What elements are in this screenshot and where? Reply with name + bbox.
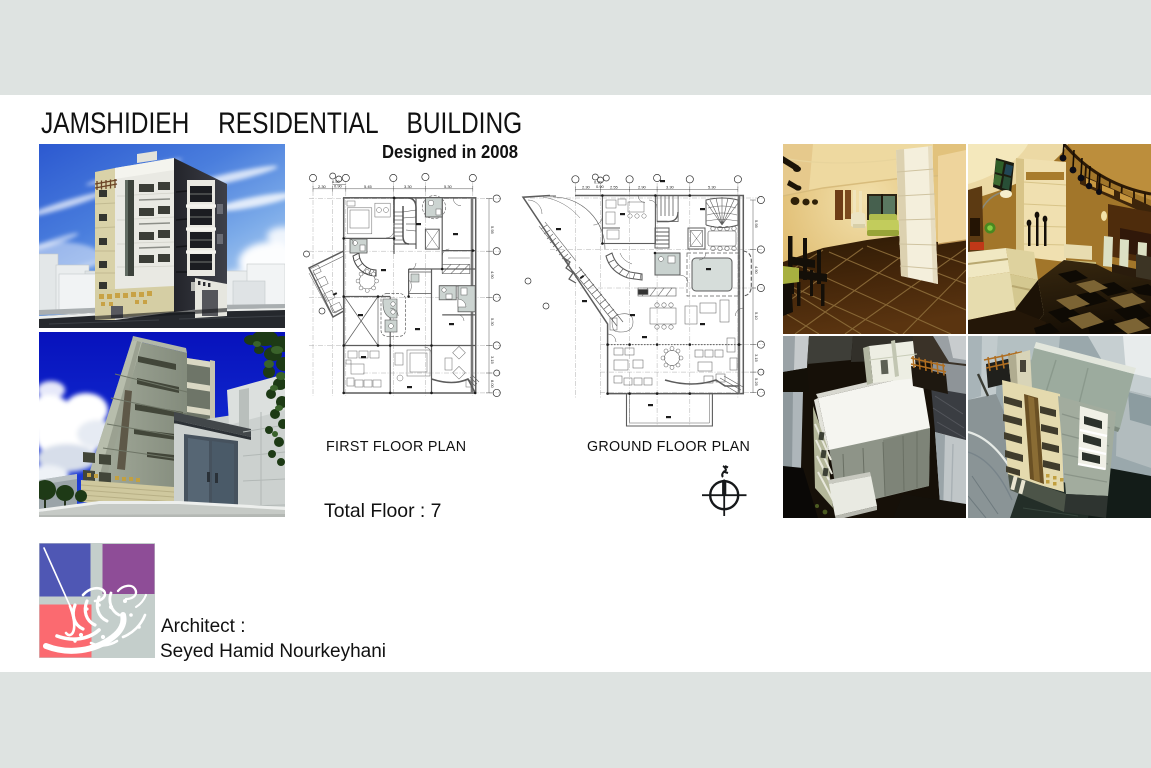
svg-text:5.95: 5.95: [754, 220, 759, 229]
svg-text:5.25: 5.25: [754, 378, 759, 387]
svg-text:5.30: 5.30: [708, 184, 717, 189]
svg-text:3.30: 3.30: [404, 184, 413, 189]
svg-text:5.10: 5.10: [754, 312, 759, 321]
svg-text:2.55: 2.55: [610, 184, 619, 189]
svg-text:5.30: 5.30: [490, 318, 495, 327]
svg-text:3.15: 3.15: [754, 354, 759, 363]
svg-text:0.90: 0.90: [334, 183, 343, 188]
svg-text:5.95: 5.95: [490, 226, 495, 235]
svg-text:4.90: 4.90: [490, 271, 495, 280]
svg-text:3.15: 3.15: [490, 356, 495, 365]
svg-text:5.45: 5.45: [364, 184, 373, 189]
svg-text:8.00: 8.00: [490, 380, 495, 389]
svg-text:2.30: 2.30: [582, 184, 591, 189]
svg-text:2.90: 2.90: [638, 184, 647, 189]
svg-text:3.30: 3.30: [666, 184, 675, 189]
svg-text:5.30: 5.30: [444, 184, 453, 189]
svg-text:2.30: 2.30: [318, 184, 327, 189]
svg-text:0.90: 0.90: [596, 184, 605, 189]
svg-text:4.90: 4.90: [754, 266, 759, 275]
